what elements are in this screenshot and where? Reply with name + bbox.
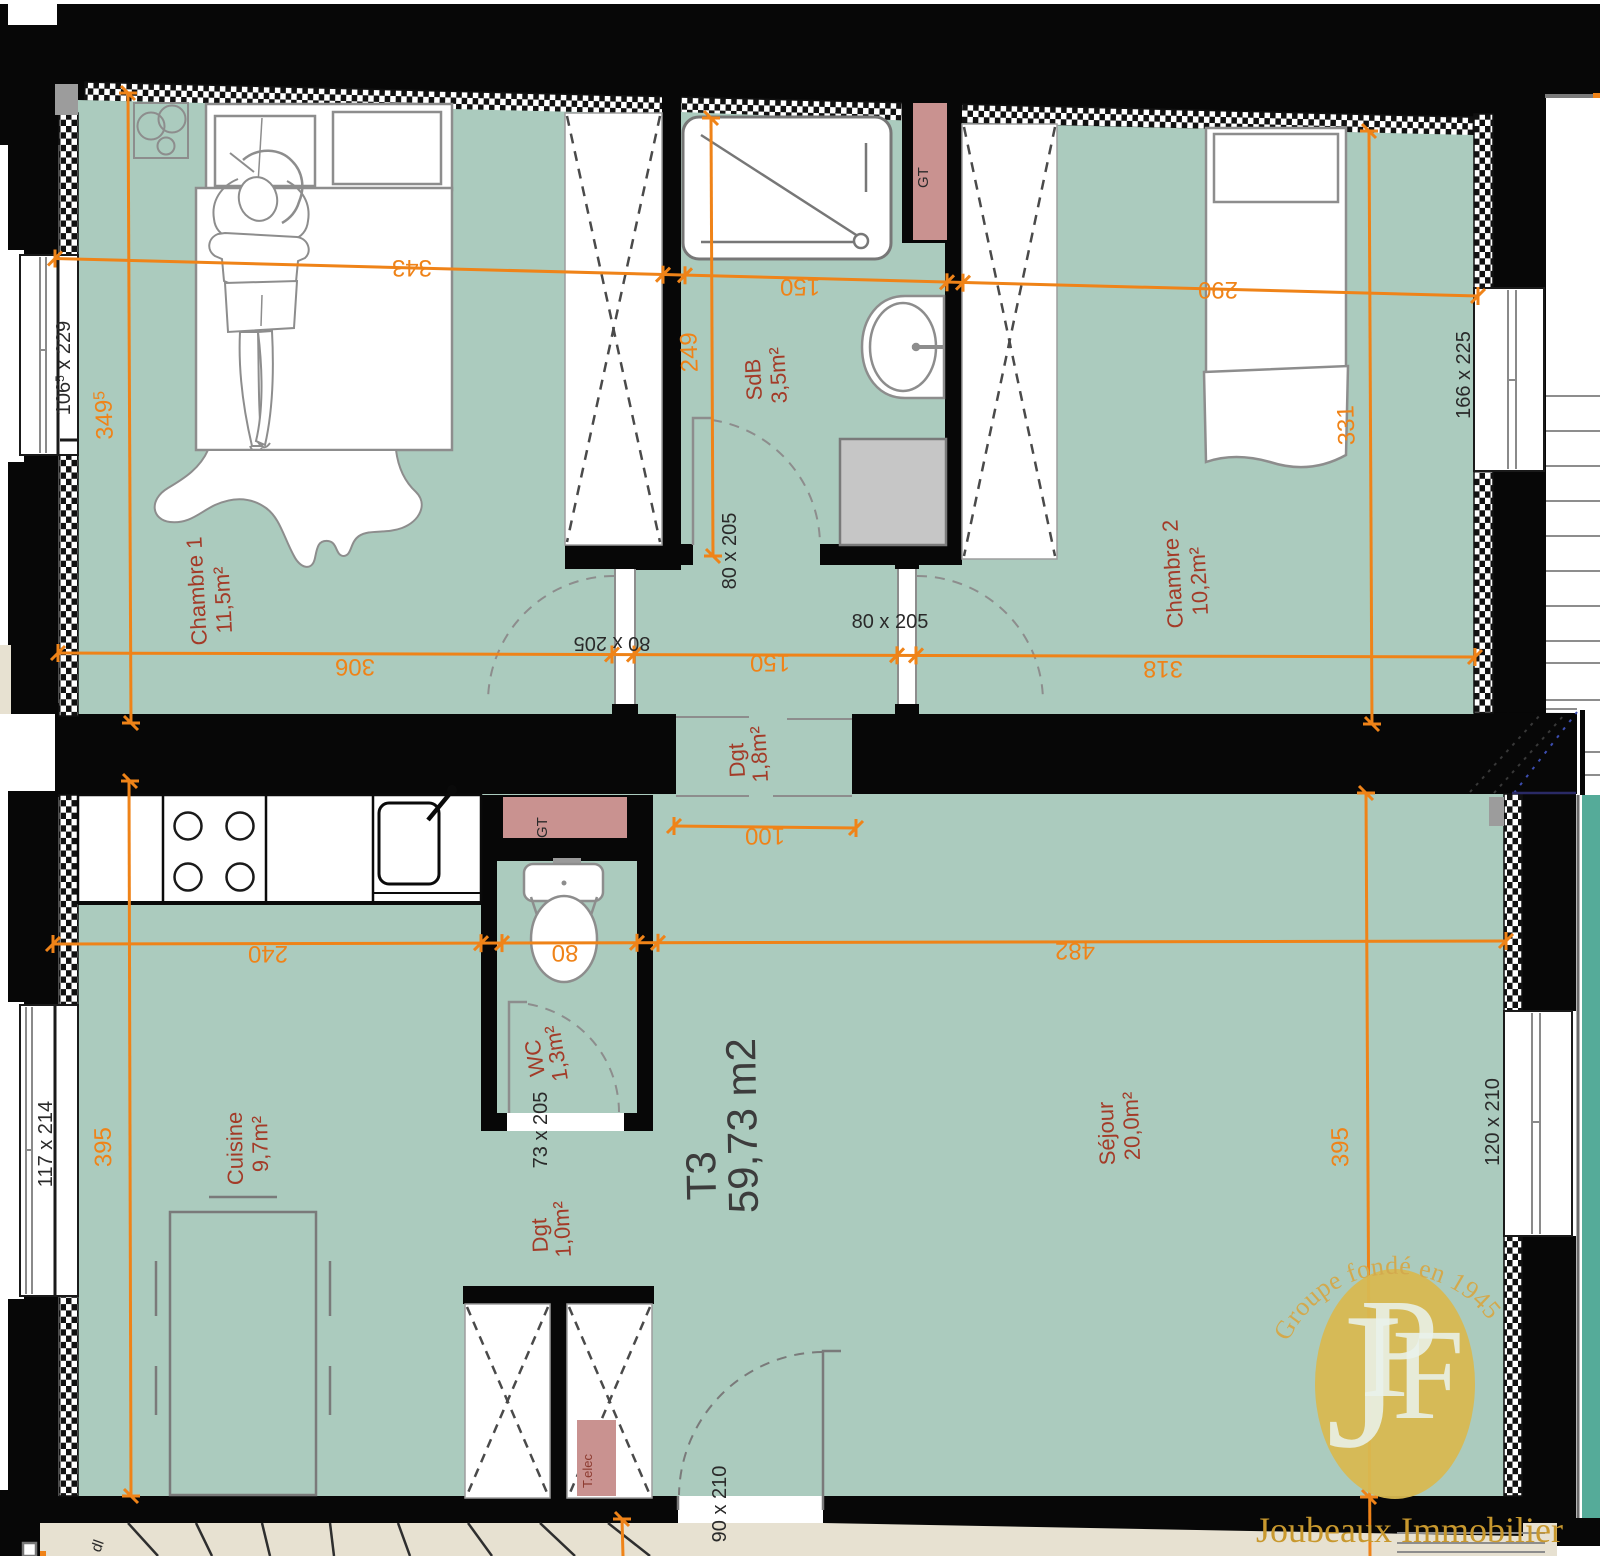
svg-text:T3: T3 — [677, 1151, 725, 1201]
svg-text:Cuisine: Cuisine — [222, 1112, 248, 1186]
svg-text:11,5m²: 11,5m² — [209, 566, 237, 634]
svg-text:120 x 210: 120 x 210 — [1482, 1078, 1504, 1166]
svg-text:9,7m²: 9,7m² — [247, 1116, 273, 1173]
svg-text:SdB: SdB — [740, 358, 767, 401]
svg-text:73 x 205: 73 x 205 — [530, 1092, 552, 1169]
svg-text:1,0m²: 1,0m² — [548, 1201, 576, 1258]
svg-text:3,5m²: 3,5m² — [764, 347, 792, 404]
svg-text:90 x 210: 90 x 210 — [709, 1466, 731, 1543]
svg-text:249: 249 — [675, 332, 703, 373]
svg-text:Joubeaux Immobilier: Joubeaux Immobilier — [1256, 1510, 1563, 1550]
svg-text:343: 343 — [392, 254, 432, 281]
svg-text:150: 150 — [750, 649, 790, 676]
svg-text:100: 100 — [745, 822, 785, 849]
svg-text:166 x 225: 166 x 225 — [1453, 331, 1475, 419]
svg-text:395: 395 — [90, 1127, 118, 1168]
svg-text:117 x 214: 117 x 214 — [35, 1101, 57, 1187]
svg-text:59,73 m2: 59,73 m2 — [717, 1038, 767, 1214]
svg-text:150: 150 — [780, 273, 820, 300]
svg-text:1065 x 229: 1065 x 229 — [53, 321, 75, 416]
svg-text:GT: GT — [534, 817, 551, 838]
svg-text:331: 331 — [1332, 405, 1360, 446]
svg-text:20,0m²: 20,0m² — [1118, 1091, 1145, 1160]
svg-text:80 x 205: 80 x 205 — [574, 632, 651, 654]
svg-text:240: 240 — [248, 940, 288, 967]
svg-text:395: 395 — [1327, 1127, 1355, 1168]
svg-text:318: 318 — [1143, 655, 1183, 682]
svg-text:J: J — [1326, 1273, 1402, 1489]
svg-text:80 x 205: 80 x 205 — [719, 513, 741, 590]
svg-text:306: 306 — [335, 653, 375, 680]
svg-text:1,8m²: 1,8m² — [745, 726, 773, 783]
svg-text:482: 482 — [1055, 937, 1095, 964]
svg-text:290: 290 — [1198, 276, 1238, 303]
svg-text:Séjour: Séjour — [1093, 1101, 1120, 1165]
svg-text:10,2m²: 10,2m² — [1184, 546, 1213, 616]
svg-text:80: 80 — [552, 939, 579, 966]
svg-text:T.elec: T.elec — [580, 1454, 595, 1488]
svg-text:80 x 205: 80 x 205 — [852, 611, 929, 633]
svg-text:GT: GT — [915, 167, 932, 188]
